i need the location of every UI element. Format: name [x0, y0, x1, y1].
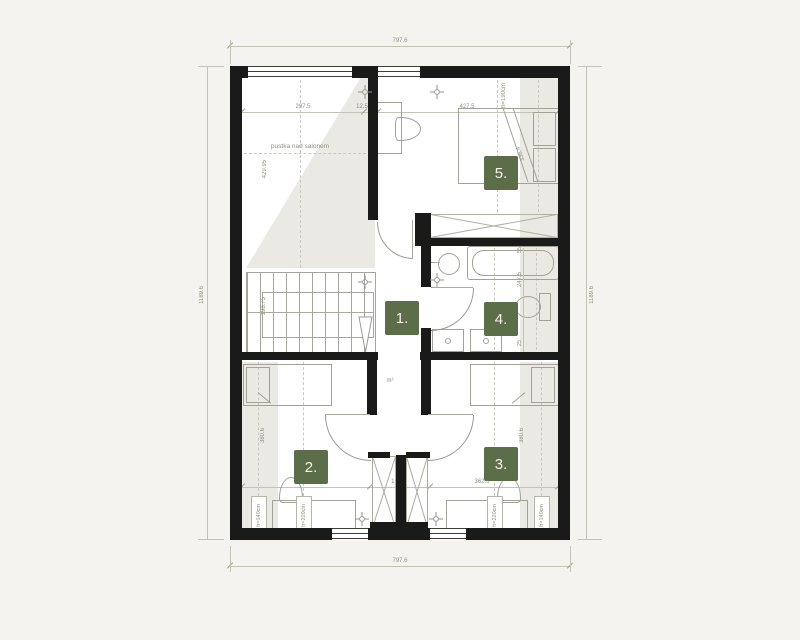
room-number-2: 2. [305, 459, 318, 476]
lamp-icon [429, 84, 445, 100]
wall-bottom-center-thick [370, 522, 428, 540]
toilet-bowl [515, 296, 541, 318]
ext-line [230, 40, 231, 64]
void-height-dim: 429.95 [262, 160, 269, 178]
stairs-run-dim: 198.75 [261, 297, 268, 315]
ext-line [230, 546, 231, 572]
wall-room5-bath [418, 238, 570, 246]
room-tag-4: 4. [484, 302, 518, 336]
dim-line-right [586, 66, 587, 540]
room-tag-3: 3. [484, 447, 518, 481]
sink-drain-b [483, 338, 489, 344]
bath-seg-top-dim: 55 [517, 247, 524, 253]
dim-line-left [207, 66, 208, 540]
window-top-center [378, 66, 420, 78]
stairs-direction-arrow [358, 316, 374, 354]
dim-line-top [230, 46, 570, 47]
dim-right-overall-height: 1189.6 [589, 286, 596, 304]
void-center-dash-h [244, 153, 366, 154]
pillow-room3 [531, 367, 555, 403]
dim-bottom-overall-width: 797.6 [380, 558, 420, 565]
window-bottom-right [430, 528, 466, 540]
dim-line-bottom [230, 566, 570, 567]
room2-h-high-label: h=220cm [301, 504, 307, 527]
lamp-icon [357, 274, 373, 290]
storage-strip-x [430, 214, 558, 238]
room-number-1: 1. [396, 310, 409, 327]
floor-plan-canvas: 797.6 797.6 1189.6 1189.6 pustka nad sal… [0, 0, 800, 640]
shaft-box-left [372, 456, 396, 528]
room-number-5: 5. [495, 165, 508, 182]
ext-line [570, 40, 571, 64]
room-number-3: 3. [495, 456, 508, 473]
dim-top-overall-width: 797.6 [380, 38, 420, 45]
door-leaf-hall-top [412, 220, 413, 258]
room5-knee-height-label: h=190cm [501, 83, 508, 108]
lamp-icon [354, 511, 370, 527]
ext-line [570, 546, 571, 572]
ext-line [198, 66, 224, 67]
wall-shaft-divider [396, 455, 406, 530]
ext-line [578, 539, 602, 540]
sink-tap-line [430, 262, 440, 263]
wall-right [558, 66, 570, 540]
room3-h-low-label: h=140cm [539, 504, 545, 527]
wall-shaft-stub-right [406, 452, 430, 458]
room2-height-dim: 380.6 [260, 428, 267, 443]
wall-hall-right-lower [421, 360, 431, 415]
ext-line [578, 66, 602, 67]
room-tag-hallway: 1. [385, 301, 419, 335]
lamp-icon [429, 272, 445, 288]
hallway-area-unit: m² [382, 378, 398, 385]
bathtub-inner [472, 250, 554, 276]
bath-height-dim: 247.5 [517, 272, 524, 287]
pillow-room2 [246, 367, 270, 403]
bath-seg-bottom-dim: 25 [517, 340, 524, 346]
wall-shaft-stub-left [368, 452, 390, 458]
sink-drain-a [445, 338, 451, 344]
wall-hall-left-lower [367, 352, 377, 415]
lamp-icon [357, 84, 373, 100]
window-bottom-left [332, 528, 368, 540]
room-tag-2: 2. [294, 450, 328, 484]
wall-left [230, 66, 242, 540]
lamp-icon [428, 511, 444, 527]
room3-h-high-label: h=220cm [492, 504, 498, 527]
room-tag-5: 5. [484, 156, 518, 190]
window-top-left [248, 66, 352, 78]
ext-line [198, 539, 224, 540]
room3-height-dim: 380.6 [519, 428, 526, 443]
wall-bath-bottom [420, 352, 570, 360]
dim-left-overall-height: 1189.6 [199, 286, 206, 304]
bath-dim-line [523, 248, 524, 352]
dim-void-width: 297.5 [283, 104, 323, 111]
room2-h-low-label: h=140cm [256, 504, 262, 527]
room-number-4: 4. [495, 311, 508, 328]
toilet-tank [539, 293, 551, 321]
wall-stairs-room2 [230, 352, 378, 360]
shaft-box-right [406, 456, 428, 528]
desk-room2 [272, 500, 356, 529]
